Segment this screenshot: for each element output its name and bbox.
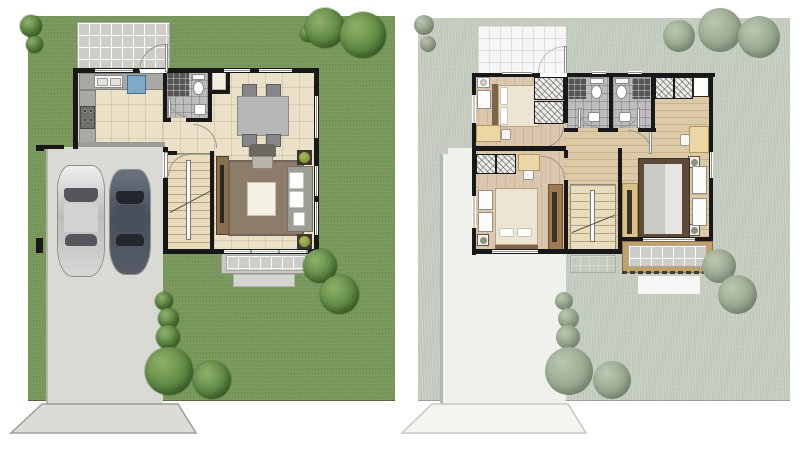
tree	[320, 275, 359, 314]
car-windshield	[64, 188, 97, 202]
terrace-step	[233, 274, 295, 287]
tree-faded	[593, 361, 631, 399]
car-roof	[64, 203, 99, 232]
dining-window	[224, 69, 250, 72]
nightstand	[692, 198, 707, 226]
sink-basin	[97, 78, 108, 86]
bathroom-wall	[163, 70, 167, 122]
stairwell-wall-stub	[167, 151, 177, 155]
toilet-bowl	[616, 85, 627, 99]
potted-plant	[297, 150, 312, 165]
terrace-sliding-door	[224, 250, 308, 253]
wood-cabinet-slab	[552, 192, 557, 242]
toilet-tank	[615, 78, 629, 84]
desk	[476, 125, 501, 142]
hedge-bush	[156, 325, 180, 349]
plant-foliage	[691, 159, 698, 166]
bathroom-window	[592, 71, 606, 74]
bathroom-divider-wall	[609, 73, 613, 132]
wardrobe	[655, 77, 674, 99]
balcony-shadow	[638, 276, 700, 294]
ground-floor-plan	[0, 0, 400, 455]
car-windshield	[116, 191, 145, 205]
wardrobe	[496, 154, 516, 174]
shower	[568, 78, 586, 99]
tree-faded	[414, 15, 434, 35]
bed-pillow	[500, 87, 508, 105]
coffee-table	[247, 182, 276, 216]
upper-floor-plan	[400, 0, 800, 455]
exterior-wall-left	[73, 68, 78, 149]
tree	[26, 36, 43, 53]
bedroom-wall	[564, 73, 568, 123]
sofa-cushion	[289, 172, 304, 189]
entry-door-leaf	[164, 152, 168, 178]
car-rear-window	[116, 234, 144, 245]
car-rear-window	[65, 234, 97, 246]
armchair-seat	[252, 156, 273, 169]
balcony-railing	[622, 271, 713, 274]
tv-screen	[220, 165, 224, 223]
master-door-leaf	[649, 130, 652, 154]
nightstand	[478, 212, 493, 232]
balcony-tiles	[628, 245, 707, 267]
hall-wall-bottom	[564, 249, 622, 254]
car-roof	[115, 205, 145, 232]
blue-appliance	[127, 75, 146, 94]
desk	[518, 154, 540, 171]
master-bed-mattress	[644, 164, 682, 234]
dining-window	[259, 69, 292, 72]
living-side-window	[315, 166, 318, 196]
roof-door-gap	[540, 73, 567, 77]
bed-pillow	[500, 107, 508, 125]
sofa-cushion	[289, 191, 304, 208]
bathroom-wall	[186, 118, 212, 122]
potted-plant	[297, 234, 312, 249]
kitchen-sink	[94, 75, 123, 88]
washbasin	[194, 104, 206, 115]
nightstand	[692, 166, 707, 194]
shower	[632, 78, 650, 99]
toilet-tank	[590, 78, 604, 84]
plant-foliage	[480, 237, 487, 244]
bathroom1-door-leaf	[578, 108, 581, 128]
stairwell-wall	[210, 151, 214, 251]
tree-faded	[698, 8, 742, 52]
dark-car	[110, 170, 150, 274]
dining-side-window	[315, 96, 318, 138]
stair-handrail	[590, 190, 595, 242]
corner-cabinet	[693, 77, 709, 97]
silver-car	[58, 166, 104, 276]
plant-foliage	[691, 227, 698, 234]
bedroom-wall	[564, 180, 568, 254]
tree-faded	[420, 36, 436, 52]
burner	[89, 118, 93, 122]
tree-faded	[718, 275, 757, 314]
rear-bedroom-window	[492, 250, 538, 253]
terrace-tiles	[226, 255, 306, 271]
bathroom-wall	[163, 118, 171, 122]
bathroom-wall	[208, 70, 212, 122]
bedroom-side-window	[472, 196, 476, 228]
tv-dresser-slab	[627, 190, 632, 234]
floor-plan-canvas	[0, 0, 800, 455]
bathroom-wall-bottom	[638, 128, 656, 132]
front-bedroom-window	[502, 71, 532, 74]
tree-faded	[738, 16, 780, 58]
toilet-bowl	[193, 81, 204, 95]
bedroom-wall	[564, 150, 568, 158]
tree	[305, 8, 345, 48]
tree	[145, 347, 193, 395]
bathroom-wall-bottom	[598, 128, 618, 132]
stove	[80, 106, 95, 129]
burner	[83, 118, 87, 122]
burner	[89, 109, 93, 113]
wardrobe	[674, 77, 693, 99]
driveway-apron	[0, 402, 210, 436]
roof-terrace-door-leaf	[564, 46, 567, 74]
nightstand	[478, 190, 493, 210]
shower	[167, 72, 189, 97]
wardrobe	[476, 154, 496, 174]
desk-chair	[523, 170, 534, 180]
hedge-bush-faded	[556, 325, 580, 349]
bedroom-divider-wall	[474, 146, 566, 151]
bed-pillow	[499, 228, 514, 237]
bathroom-wall-bottom	[564, 128, 578, 132]
kitchen-half-wall	[77, 142, 165, 147]
carport-post	[36, 238, 43, 253]
sink-basin	[110, 78, 121, 86]
wardrobe	[534, 77, 564, 100]
sofa-footstool	[293, 212, 305, 226]
wall-stub-faded	[436, 146, 448, 154]
bathroom-wall	[651, 73, 655, 132]
nightstand	[477, 90, 491, 109]
tree	[340, 12, 386, 58]
table-lamp	[480, 79, 487, 86]
desk	[689, 126, 709, 153]
plant-foliage	[299, 236, 310, 247]
bathroom2-door-leaf	[637, 108, 640, 128]
bathroom-door-leaf	[168, 98, 171, 118]
plant-foliage	[299, 152, 310, 163]
bathroom-window	[628, 71, 642, 74]
master-wall	[618, 148, 622, 251]
tree	[193, 361, 231, 399]
kitchen-window	[95, 69, 133, 72]
desk-chair	[501, 129, 511, 140]
toilet-bowl	[591, 85, 602, 99]
nook-wall	[210, 90, 230, 94]
tree-faded	[545, 347, 593, 395]
bed-pillow	[517, 228, 532, 237]
terrace-roof-faded	[570, 255, 616, 273]
dining-table	[237, 96, 289, 136]
burner	[83, 109, 87, 113]
desk-chair	[680, 134, 690, 146]
carport-wall-stub	[36, 145, 64, 149]
tree	[20, 15, 42, 37]
master-side-window	[710, 152, 713, 178]
wardrobe	[534, 101, 564, 124]
potted-plant	[477, 234, 489, 246]
tree-faded	[663, 20, 695, 52]
living-side-window	[315, 202, 318, 235]
bedroom-side-window	[472, 95, 476, 123]
patio-door-leaf	[165, 44, 168, 72]
driveway-apron-faded	[400, 402, 600, 436]
toilet-tank	[192, 74, 205, 80]
closet-nook	[212, 72, 226, 90]
